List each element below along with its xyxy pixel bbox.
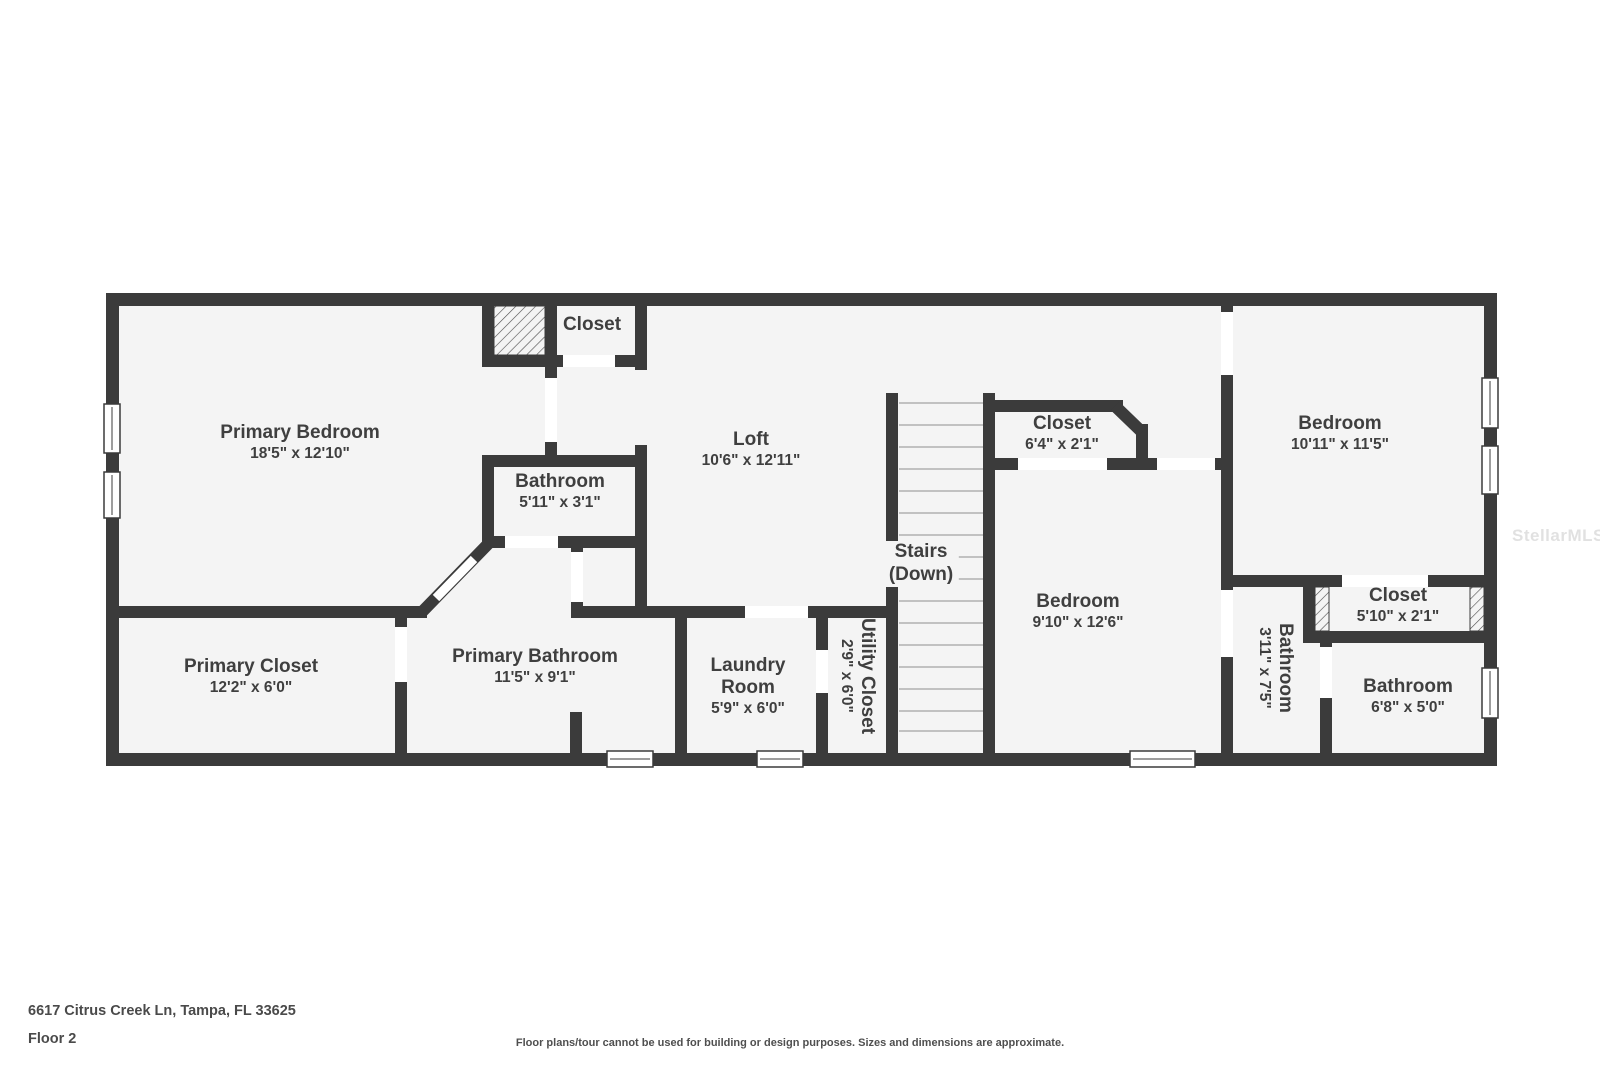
watermark: StellarMLS (1512, 526, 1600, 546)
floor-plan-drawing (0, 0, 1600, 1066)
disclaimer-text: Floor plans/tour cannot be used for buil… (516, 1037, 1064, 1049)
floor-plan-page: Primary Bedroom 18'5" x 12'10" Closet Ba… (0, 0, 1600, 1066)
plan-interior (106, 293, 1497, 766)
floor-label: Floor 2 (28, 1031, 76, 1047)
address-text: 6617 Citrus Creek Ln, Tampa, FL 33625 (28, 1003, 296, 1019)
